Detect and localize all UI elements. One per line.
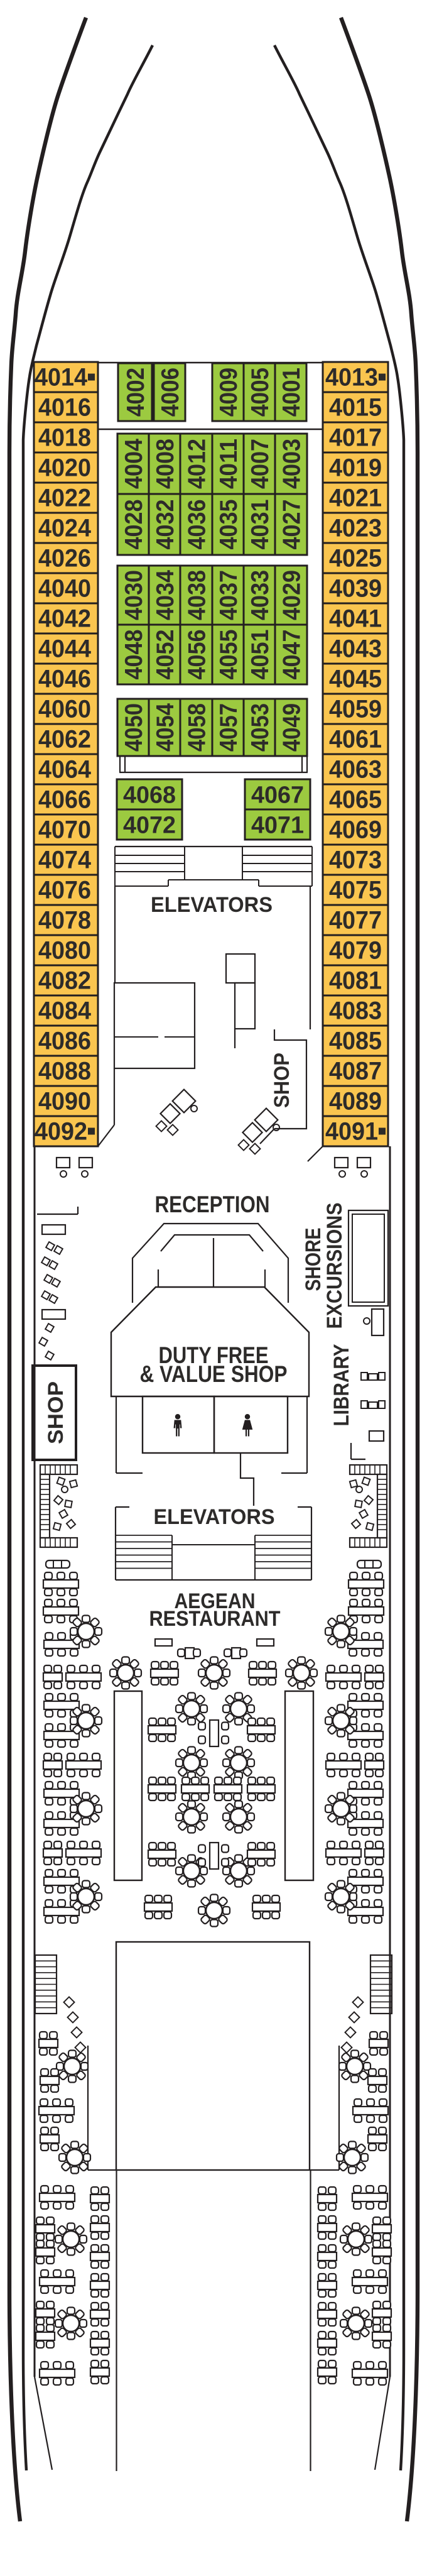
svg-text:4011: 4011 (215, 439, 242, 489)
svg-text:SHOP: SHOP (44, 1381, 68, 1444)
svg-text:4071: 4071 (251, 813, 304, 839)
svg-text:SHORE: SHORE (301, 1228, 325, 1291)
svg-text:ELEVATORS: ELEVATORS (151, 893, 273, 917)
svg-text:4019: 4019 (329, 454, 382, 482)
svg-text:4017: 4017 (329, 424, 382, 452)
svg-text:4023: 4023 (329, 515, 382, 542)
svg-text:4054: 4054 (152, 703, 179, 752)
svg-text:4006: 4006 (157, 368, 184, 417)
svg-text:4049: 4049 (279, 703, 306, 752)
svg-text:4001: 4001 (278, 368, 305, 417)
svg-text:4085: 4085 (329, 1028, 382, 1055)
svg-text:4033: 4033 (247, 570, 274, 620)
svg-text:4058: 4058 (184, 703, 211, 752)
svg-text:4027: 4027 (279, 500, 306, 550)
svg-text:LIBRARY: LIBRARY (330, 1344, 354, 1426)
svg-text:4087: 4087 (329, 1058, 382, 1085)
svg-text:4083: 4083 (329, 997, 382, 1025)
svg-text:4043: 4043 (329, 635, 382, 663)
svg-text:4003: 4003 (279, 439, 306, 489)
svg-text:4067: 4067 (251, 782, 304, 809)
svg-text:4026: 4026 (38, 545, 91, 573)
svg-text:4061: 4061 (329, 726, 382, 754)
svg-text:4030: 4030 (121, 570, 148, 620)
svg-text:4037: 4037 (215, 570, 242, 620)
svg-text:4056: 4056 (184, 630, 211, 680)
svg-text:4047: 4047 (279, 630, 306, 680)
svg-text:4002: 4002 (122, 368, 149, 417)
svg-text:4065: 4065 (329, 786, 382, 814)
svg-text:4042: 4042 (38, 605, 91, 633)
svg-text:4020: 4020 (38, 454, 91, 482)
svg-text:4074: 4074 (38, 847, 92, 874)
svg-text:4089: 4089 (329, 1088, 382, 1115)
svg-text:4073: 4073 (329, 847, 382, 874)
svg-text:4084: 4084 (38, 997, 92, 1025)
svg-text:4029: 4029 (279, 570, 306, 620)
svg-text:4004: 4004 (121, 439, 148, 489)
svg-text:4032: 4032 (152, 500, 179, 550)
svg-text:4045: 4045 (329, 666, 382, 693)
svg-text:4088: 4088 (38, 1058, 91, 1085)
svg-text:4064: 4064 (38, 756, 92, 784)
svg-text:4034: 4034 (152, 570, 179, 620)
svg-text:RESTAURANT: RESTAURANT (149, 1607, 281, 1631)
svg-text:4036: 4036 (184, 500, 211, 550)
svg-text:4051: 4051 (247, 630, 274, 680)
svg-text:4014: 4014 (35, 364, 88, 392)
svg-text:4066: 4066 (38, 786, 91, 814)
svg-text:4090: 4090 (38, 1088, 91, 1115)
svg-text:ELEVATORS: ELEVATORS (154, 1505, 275, 1529)
svg-text:4069: 4069 (329, 816, 382, 844)
svg-text:4046: 4046 (38, 666, 91, 693)
svg-text:4052: 4052 (152, 630, 179, 680)
svg-text:4075: 4075 (329, 877, 382, 904)
svg-text:4038: 4038 (184, 570, 211, 620)
svg-text:4086: 4086 (38, 1028, 91, 1055)
svg-text:4018: 4018 (38, 424, 91, 452)
svg-text:4008: 4008 (152, 439, 179, 489)
svg-text:4055: 4055 (215, 630, 242, 680)
svg-text:4031: 4031 (247, 500, 274, 550)
svg-text:4091: 4091 (325, 1118, 378, 1146)
svg-text:4040: 4040 (38, 575, 91, 603)
svg-text:4062: 4062 (38, 726, 91, 754)
svg-text:4005: 4005 (247, 368, 274, 417)
svg-text:4039: 4039 (329, 575, 382, 603)
svg-text:4057: 4057 (215, 703, 242, 752)
svg-text:RECEPTION: RECEPTION (155, 1192, 270, 1217)
svg-text:4077: 4077 (329, 907, 382, 934)
svg-text:4070: 4070 (38, 816, 91, 844)
svg-text:4021: 4021 (329, 485, 382, 512)
svg-text:4079: 4079 (329, 937, 382, 965)
svg-text:4041: 4041 (329, 605, 382, 633)
svg-text:4016: 4016 (38, 394, 91, 422)
svg-text:4012: 4012 (184, 439, 211, 489)
svg-text:SHOP: SHOP (270, 1053, 294, 1108)
svg-text:4028: 4028 (121, 500, 148, 550)
svg-text:4013: 4013 (325, 364, 378, 392)
svg-text:4059: 4059 (329, 696, 382, 723)
svg-text:4076: 4076 (38, 877, 91, 904)
svg-text:4068: 4068 (123, 782, 176, 809)
svg-text:4082: 4082 (38, 967, 91, 995)
svg-text:4060: 4060 (38, 696, 91, 723)
svg-text:4053: 4053 (247, 703, 274, 752)
svg-text:4072: 4072 (123, 813, 176, 839)
svg-text:4078: 4078 (38, 907, 91, 934)
svg-text:4063: 4063 (329, 756, 382, 784)
svg-text:4081: 4081 (329, 967, 382, 995)
svg-text:& VALUE SHOP: & VALUE SHOP (140, 1361, 288, 1387)
svg-text:4007: 4007 (247, 439, 274, 489)
svg-text:4044: 4044 (38, 635, 92, 663)
svg-text:4022: 4022 (38, 485, 91, 512)
svg-text:4092: 4092 (35, 1118, 87, 1146)
svg-text:4025: 4025 (329, 545, 382, 573)
svg-text:4024: 4024 (38, 515, 92, 542)
svg-text:4048: 4048 (121, 630, 148, 680)
svg-text:4050: 4050 (121, 703, 148, 752)
svg-text:4015: 4015 (329, 394, 382, 422)
svg-text:4080: 4080 (38, 937, 91, 965)
svg-text:4009: 4009 (215, 368, 242, 417)
svg-text:EXCURSIONS: EXCURSIONS (323, 1203, 347, 1329)
svg-text:4035: 4035 (215, 500, 242, 550)
